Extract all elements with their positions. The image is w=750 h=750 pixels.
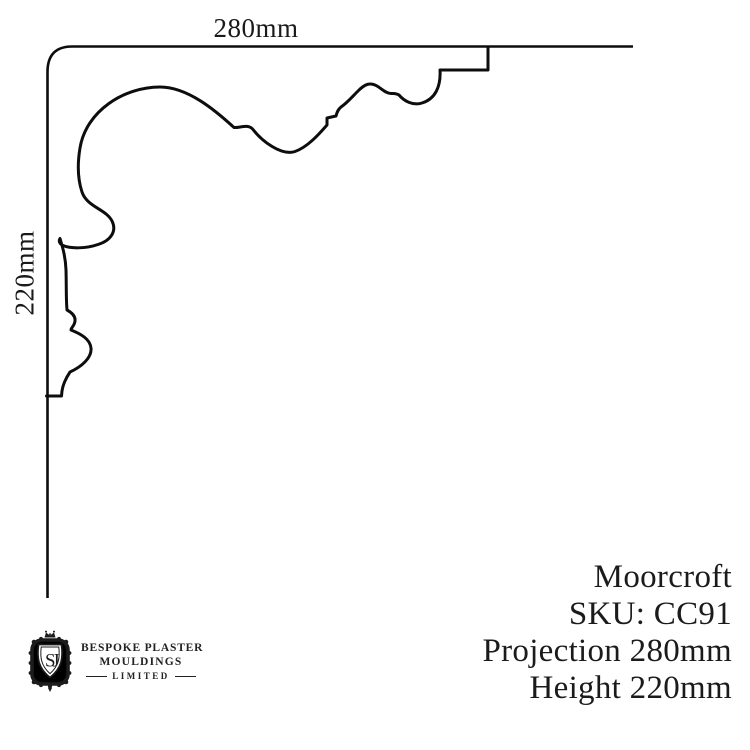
logo-name-line3: LIMITED <box>112 671 170 681</box>
product-info-block: Moorcroft SKU: CC91 Projection 280mm Hei… <box>482 559 732 707</box>
logo-wordmark: BESPOKE PLASTER MOULDINGS LIMITED <box>81 641 201 681</box>
product-height: Height 220mm <box>482 670 732 707</box>
logo-limited-row: LIMITED <box>81 671 201 681</box>
company-logo: SJ BESPOKE PLASTER MOULDINGS LIMITED <box>25 630 201 692</box>
product-sku: SKU: CC91 <box>482 596 732 633</box>
limited-rule-left <box>86 676 107 677</box>
moulding-profile-outline <box>47 47 489 396</box>
limited-rule-right <box>175 676 196 677</box>
height-dimension-label: 220mm <box>10 230 41 315</box>
logo-name-line2: MOULDINGS <box>81 655 201 669</box>
projection-dimension-label: 280mm <box>190 13 322 44</box>
logo-name-line1: BESPOKE PLASTER <box>81 641 201 655</box>
wall-ceiling-lines <box>48 47 634 599</box>
product-drawing-page: 280mm 220mm Moorcroft SKU: CC91 Projecti… <box>0 0 750 750</box>
logo-crest-icon: SJ <box>25 630 75 692</box>
product-name: Moorcroft <box>482 559 732 596</box>
product-projection: Projection 280mm <box>482 633 732 670</box>
